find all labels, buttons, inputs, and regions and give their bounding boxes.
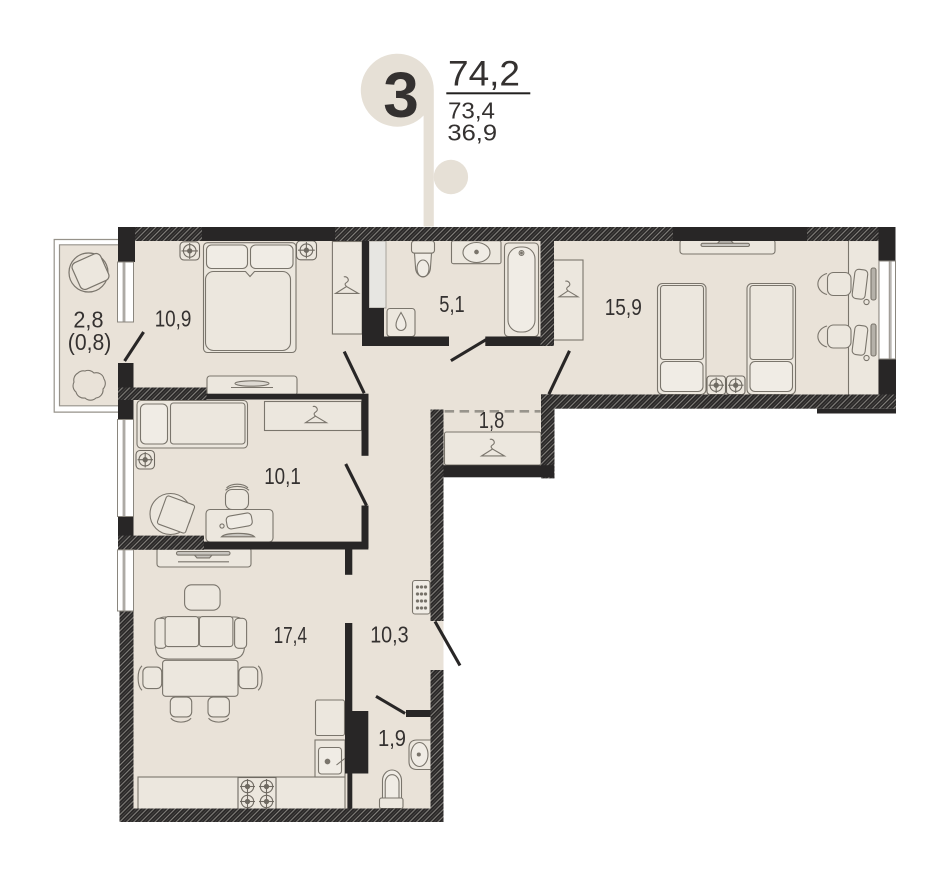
svg-text:(0,8): (0,8)	[68, 329, 112, 355]
svg-text:74,2: 74,2	[448, 54, 520, 94]
svg-text:15,9: 15,9	[605, 294, 642, 320]
svg-text:1,9: 1,9	[378, 725, 406, 751]
svg-text:36,9: 36,9	[447, 119, 497, 145]
svg-text:3: 3	[383, 59, 419, 131]
svg-text:5,1: 5,1	[439, 291, 464, 317]
svg-text:10,9: 10,9	[155, 305, 192, 331]
svg-text:10,1: 10,1	[264, 463, 301, 489]
svg-text:17,4: 17,4	[274, 622, 308, 648]
svg-text:1,8: 1,8	[479, 407, 505, 433]
svg-text:10,3: 10,3	[370, 621, 408, 647]
